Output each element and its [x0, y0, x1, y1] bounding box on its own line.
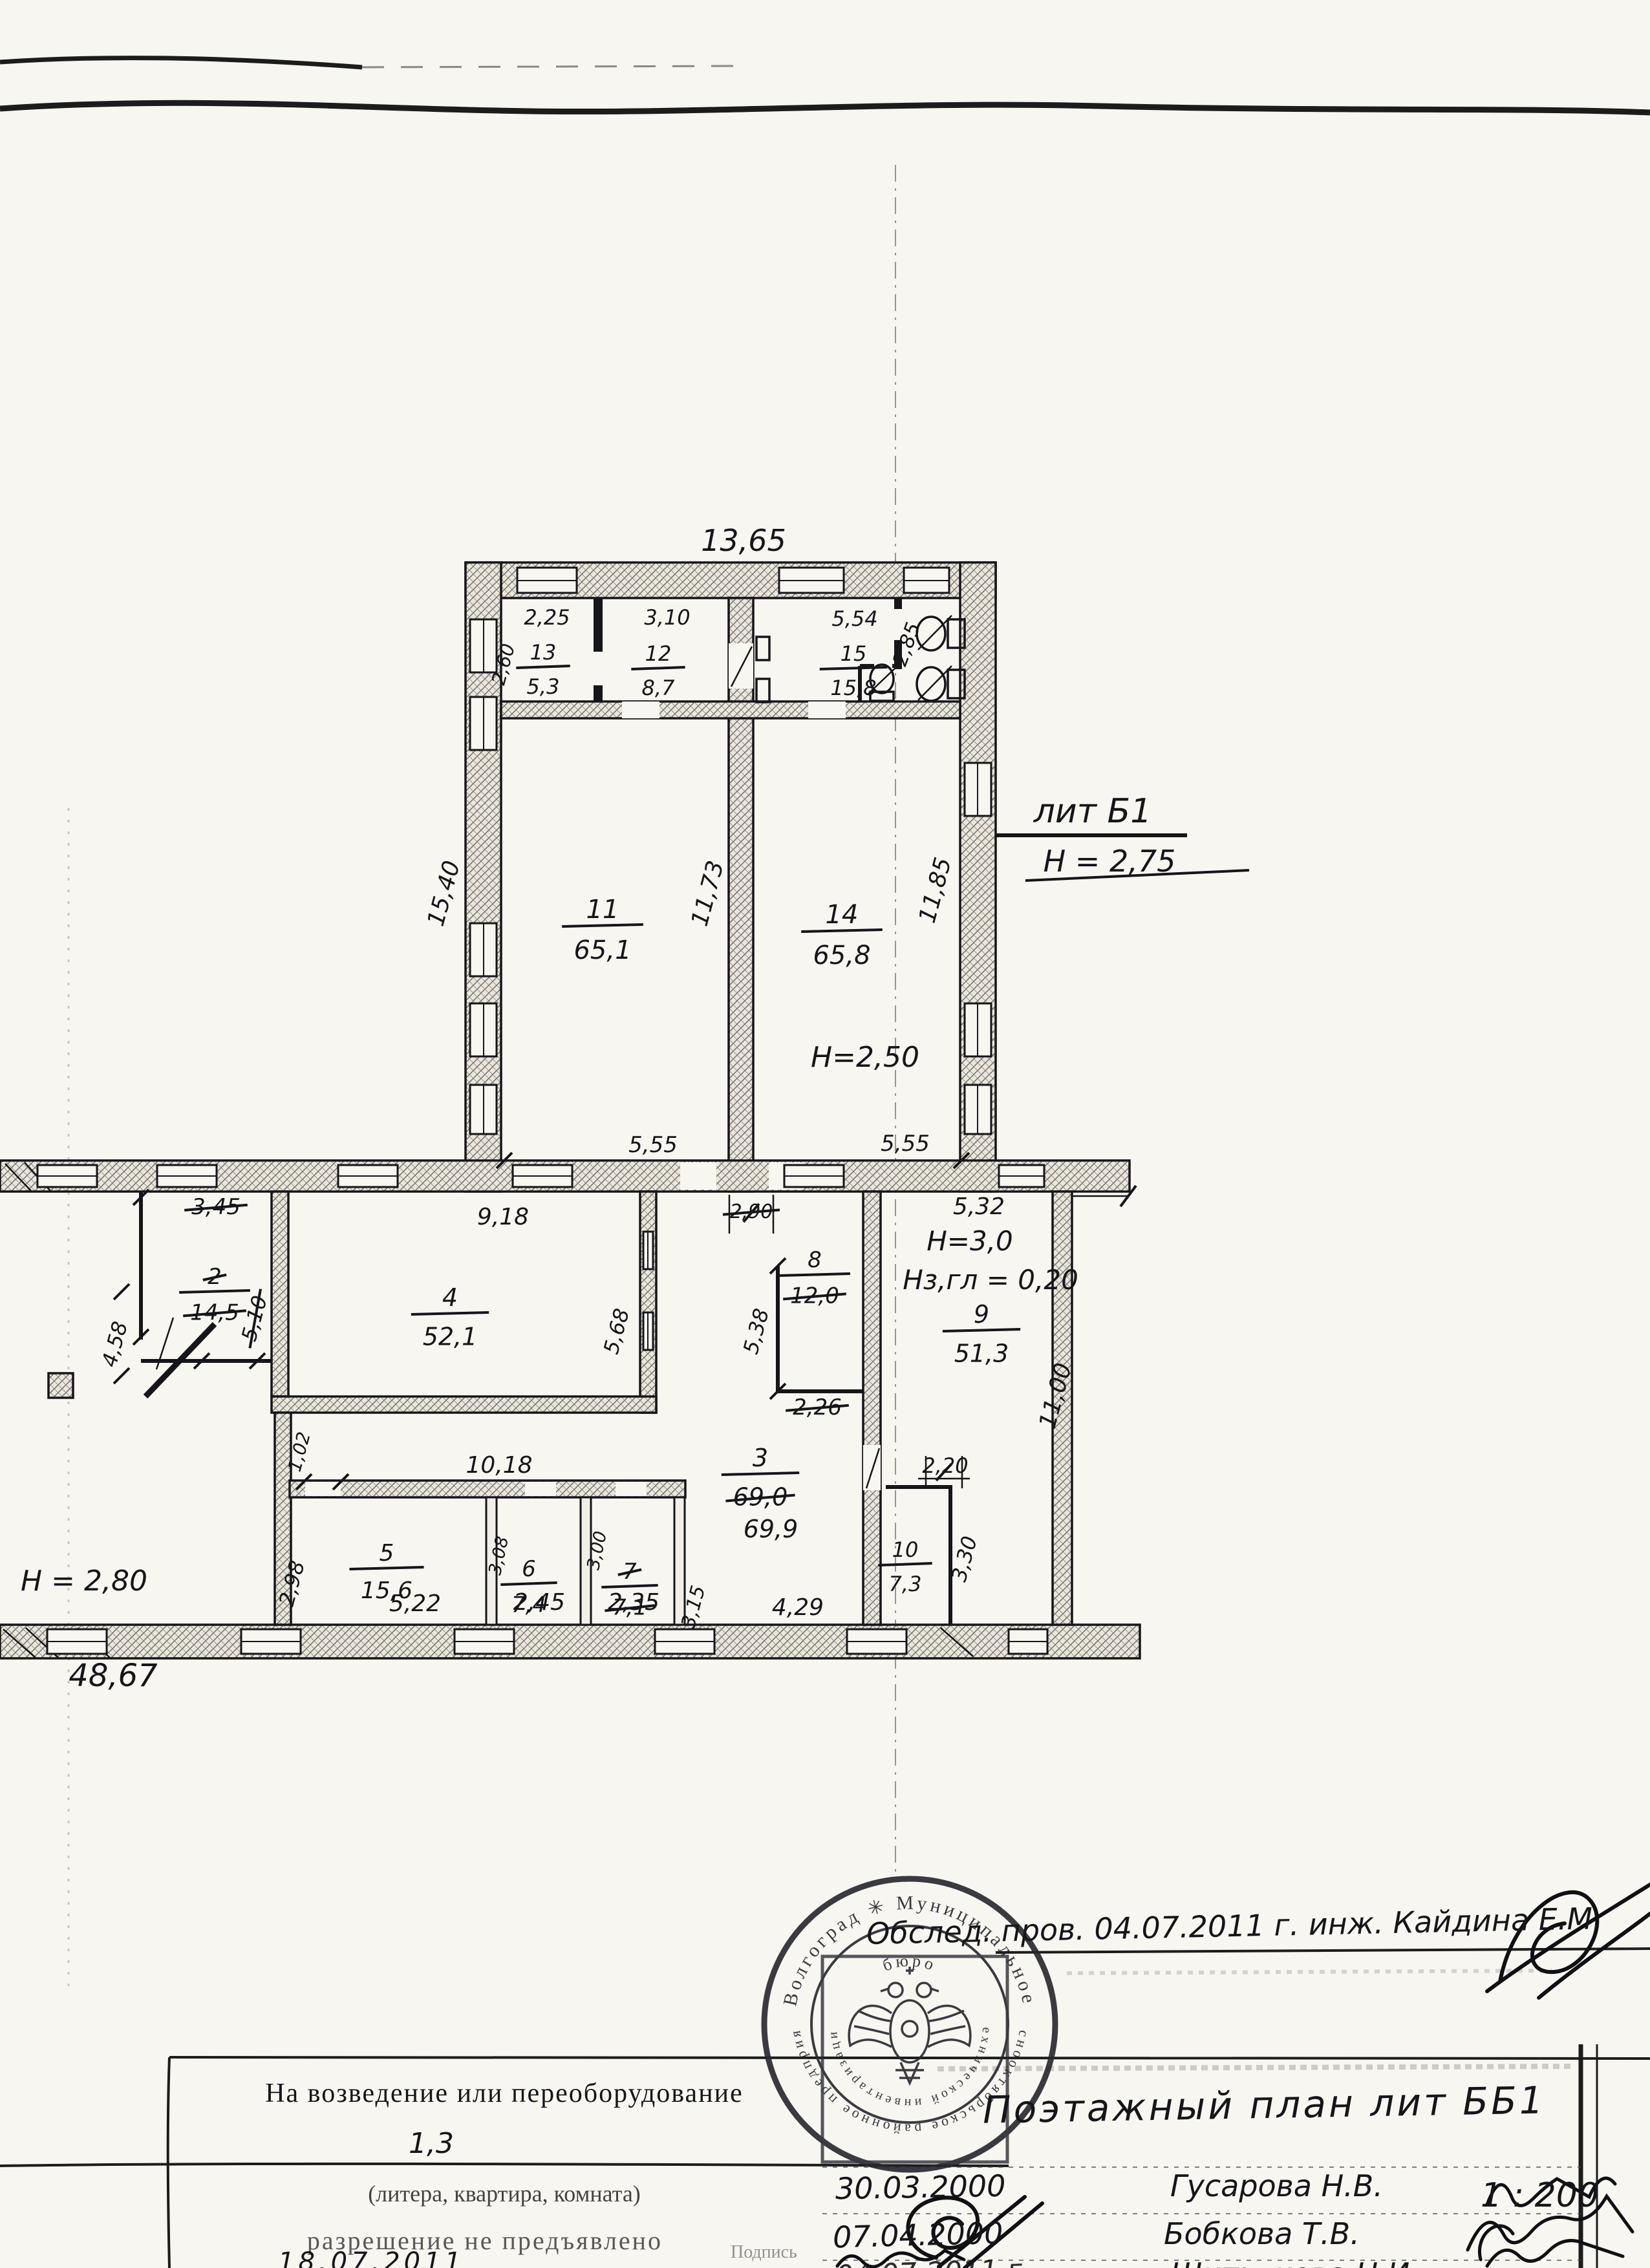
label-note-h-zgl: Нз,гл = 0,20: [903, 1264, 1078, 1296]
survey-date-2: 07.04.2000: [832, 2216, 1003, 2255]
svg-text:4,58: 4,58: [97, 1319, 133, 1370]
label-note-h-2-80: Н = 2,80: [21, 1565, 147, 1598]
svg-text:10,18: 10,18: [466, 1452, 532, 1479]
label-note-h-2-75: Н = 2,75: [1044, 844, 1176, 879]
scale-value: 1 : 200: [1481, 2176, 1599, 2215]
svg-text:52,1: 52,1: [423, 1323, 478, 1351]
svg-text:69,9: 69,9: [744, 1515, 798, 1543]
survey-date-1: 30.03.2000: [835, 2168, 1006, 2207]
svg-text:Н=3,0: Н=3,0: [927, 1225, 1013, 1257]
executor-name-3: Шитьякова Н.И.: [1170, 2256, 1419, 2268]
signature-caption: Подпись: [731, 2242, 797, 2263]
svg-text:48,67: 48,67: [69, 1658, 158, 1694]
svg-text:9: 9: [974, 1300, 989, 1329]
svg-text:8: 8: [808, 1247, 822, 1273]
svg-text:15,6: 15,6: [361, 1578, 412, 1604]
toilet-icon: [917, 666, 965, 701]
svg-text:11,73: 11,73: [687, 858, 729, 929]
svg-text:15,8: 15,8: [830, 676, 876, 700]
executor-name-2: Бобкова Т.В.: [1164, 2216, 1360, 2251]
svg-text:5,32: 5,32: [953, 1193, 1005, 1220]
label-dim-11-85: 11,85: [914, 855, 957, 926]
svg-text:11: 11: [586, 895, 619, 925]
label-dim-9-18: 9,18: [477, 1204, 529, 1230]
svg-text:7,3: 7,3: [889, 1572, 922, 1596]
label-dim-2-90: 2,90: [723, 1201, 780, 1223]
label-dim-15-40: 15,40: [423, 858, 466, 929]
svg-text:2,25: 2,25: [524, 605, 570, 630]
label-dim-5-38: 5,38: [738, 1306, 774, 1357]
signature-shityakova: [1487, 2241, 1623, 2266]
toilet-icon: [917, 615, 965, 650]
double-eagle-icon: [849, 1967, 970, 2083]
scan-artifact-lines: [0, 58, 1650, 1991]
svg-text:7,4: 7,4: [511, 1592, 546, 1618]
svg-text:4: 4: [442, 1283, 458, 1312]
svg-text:4,29: 4,29: [772, 1594, 824, 1621]
permit-value: 1,3: [409, 2127, 454, 2160]
svg-text:5,54: 5,54: [831, 606, 877, 631]
svg-text:9,18: 9,18: [477, 1204, 529, 1230]
svg-text:5,3: 5,3: [527, 674, 560, 699]
label-note-h-3-0: Н=3,0: [927, 1225, 1013, 1257]
label-dim-11-73: 11,73: [687, 858, 729, 929]
svg-text:65,8: 65,8: [813, 941, 870, 970]
label-dim-5-68: 5,68: [599, 1306, 634, 1357]
label-dim-48-67: 48,67: [69, 1658, 158, 1694]
svg-text:Н = 2,75: Н = 2,75: [1044, 844, 1176, 879]
room-label-13: 135,3: [516, 640, 570, 699]
room-label-4: 452,1: [411, 1283, 489, 1351]
svg-text:15: 15: [841, 641, 867, 666]
label-dim-5-55-left: 5,55: [628, 1132, 678, 1158]
label-dim-2-20: 2,20: [922, 1453, 968, 1478]
label-dim-5-32: 5,32: [953, 1193, 1005, 1220]
label-lit-b1: лит Б1: [1033, 792, 1152, 831]
label-dim-5-54: 5,54: [831, 606, 877, 631]
svg-text:65,1: 65,1: [573, 936, 631, 965]
room-label-10: 107,3: [878, 1537, 932, 1596]
room-label-9: 951,3: [943, 1300, 1020, 1368]
svg-text:5,55: 5,55: [628, 1132, 678, 1158]
room-label-11: 1165,1: [562, 895, 643, 965]
room-label-12: 128,7: [631, 641, 685, 700]
label-dim-4-29: 4,29: [772, 1594, 824, 1621]
label-dim-3-45: 3,45: [184, 1194, 248, 1220]
svg-text:6: 6: [522, 1556, 536, 1582]
scanned-floor-plan-document: 13,652,252,603,105,542,8515,4011,7311,85…: [0, 0, 1650, 2268]
room-label-14: 1465,8: [801, 900, 883, 970]
room-label-3: 369,069,9: [722, 1444, 799, 1543]
permit-sub-caption: (литера, квартира, комната): [272, 2180, 737, 2207]
svg-text:2,20: 2,20: [922, 1453, 968, 1478]
svg-text:51,3: 51,3: [954, 1340, 1009, 1368]
svg-text:11,85: 11,85: [914, 855, 957, 926]
svg-text:13: 13: [530, 640, 557, 665]
svg-text:15,40: 15,40: [423, 858, 466, 929]
svg-text:лит Б1: лит Б1: [1033, 792, 1152, 831]
label-dim-2-25: 2,25: [524, 605, 570, 630]
svg-text:10: 10: [892, 1537, 919, 1562]
permit-intro: На возведение или переоборудование: [213, 2078, 795, 2109]
label-dim-3-10: 3,10: [644, 605, 690, 630]
bottom-date: 18.07.2011: [278, 2247, 465, 2268]
svg-text:14: 14: [826, 900, 859, 930]
bti-stamp: Волгоград ✳ Муниципальное Краснооктябрьс…: [0, 0, 1055, 2170]
label-dim-5-55-right: 5,55: [881, 1131, 930, 1157]
label-dim-10-18: 10,18: [466, 1452, 532, 1479]
label-dim-overall-13-65: 13,65: [701, 523, 786, 558]
room-label-2: 214,5: [179, 1264, 250, 1326]
svg-text:Н = 2,80: Н = 2,80: [21, 1565, 147, 1598]
svg-text:3: 3: [753, 1444, 768, 1472]
svg-text:8,7: 8,7: [642, 676, 676, 700]
svg-text:5,38: 5,38: [738, 1306, 774, 1357]
label-dim-5-10: 5,10: [235, 1286, 274, 1350]
svg-text:12: 12: [645, 641, 672, 666]
svg-text:Нз,гл = 0,20: Нз,гл = 0,20: [903, 1264, 1078, 1296]
svg-text:5: 5: [380, 1540, 394, 1567]
svg-text:3,10: 3,10: [644, 605, 690, 630]
svg-text:13,65: 13,65: [701, 523, 786, 558]
svg-text:5,68: 5,68: [599, 1306, 634, 1357]
label-dim-4-58: 4,58: [97, 1319, 133, 1370]
executor-name-1: Гусарова Н.В.: [1170, 2168, 1383, 2203]
svg-text:Н=2,50: Н=2,50: [811, 1041, 919, 1074]
svg-text:5,55: 5,55: [881, 1131, 930, 1157]
label-note-h-2-50: Н=2,50: [811, 1041, 919, 1074]
room-label-8: 812,0: [779, 1247, 850, 1309]
label-dim-2-26: 2,26: [786, 1395, 849, 1420]
